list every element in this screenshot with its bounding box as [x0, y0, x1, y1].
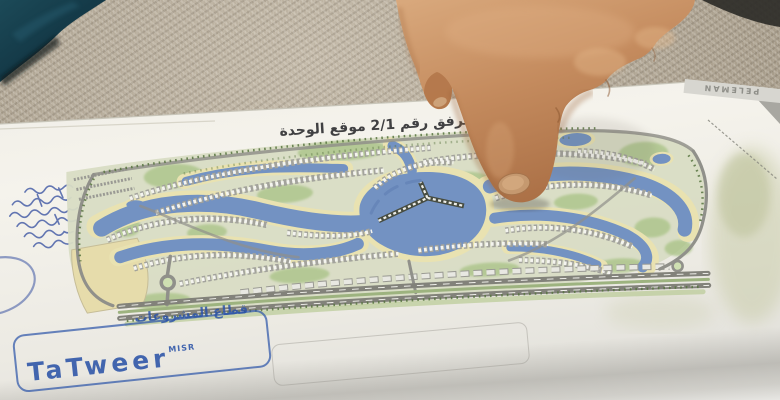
pointing-hand: [0, 0, 780, 400]
photo-scene: مرفق رقم 2/1 موقع الوحدة PELEMAN قطاع ال…: [0, 0, 780, 400]
